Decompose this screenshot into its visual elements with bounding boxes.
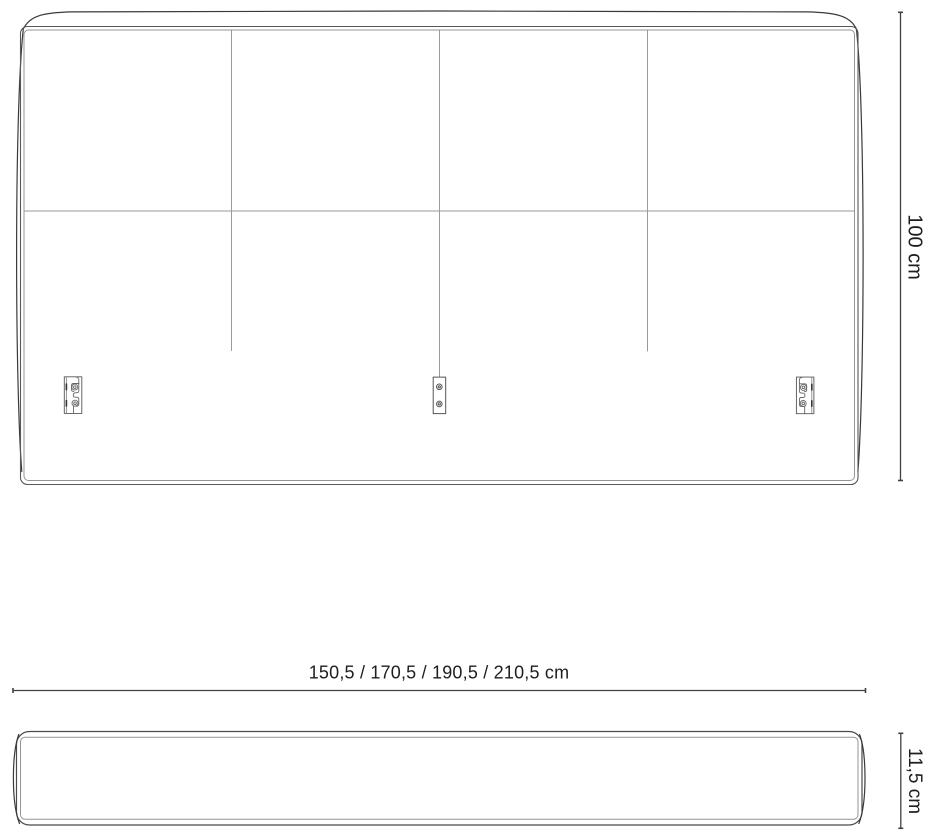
svg-text:150,5 / 170,5 / 190,5 / 210,5: 150,5 / 170,5 / 190,5 / 210,5 cm — [309, 663, 570, 683]
svg-text:100 cm: 100 cm — [904, 214, 926, 280]
svg-text:11,5 cm: 11,5 cm — [904, 748, 925, 814]
